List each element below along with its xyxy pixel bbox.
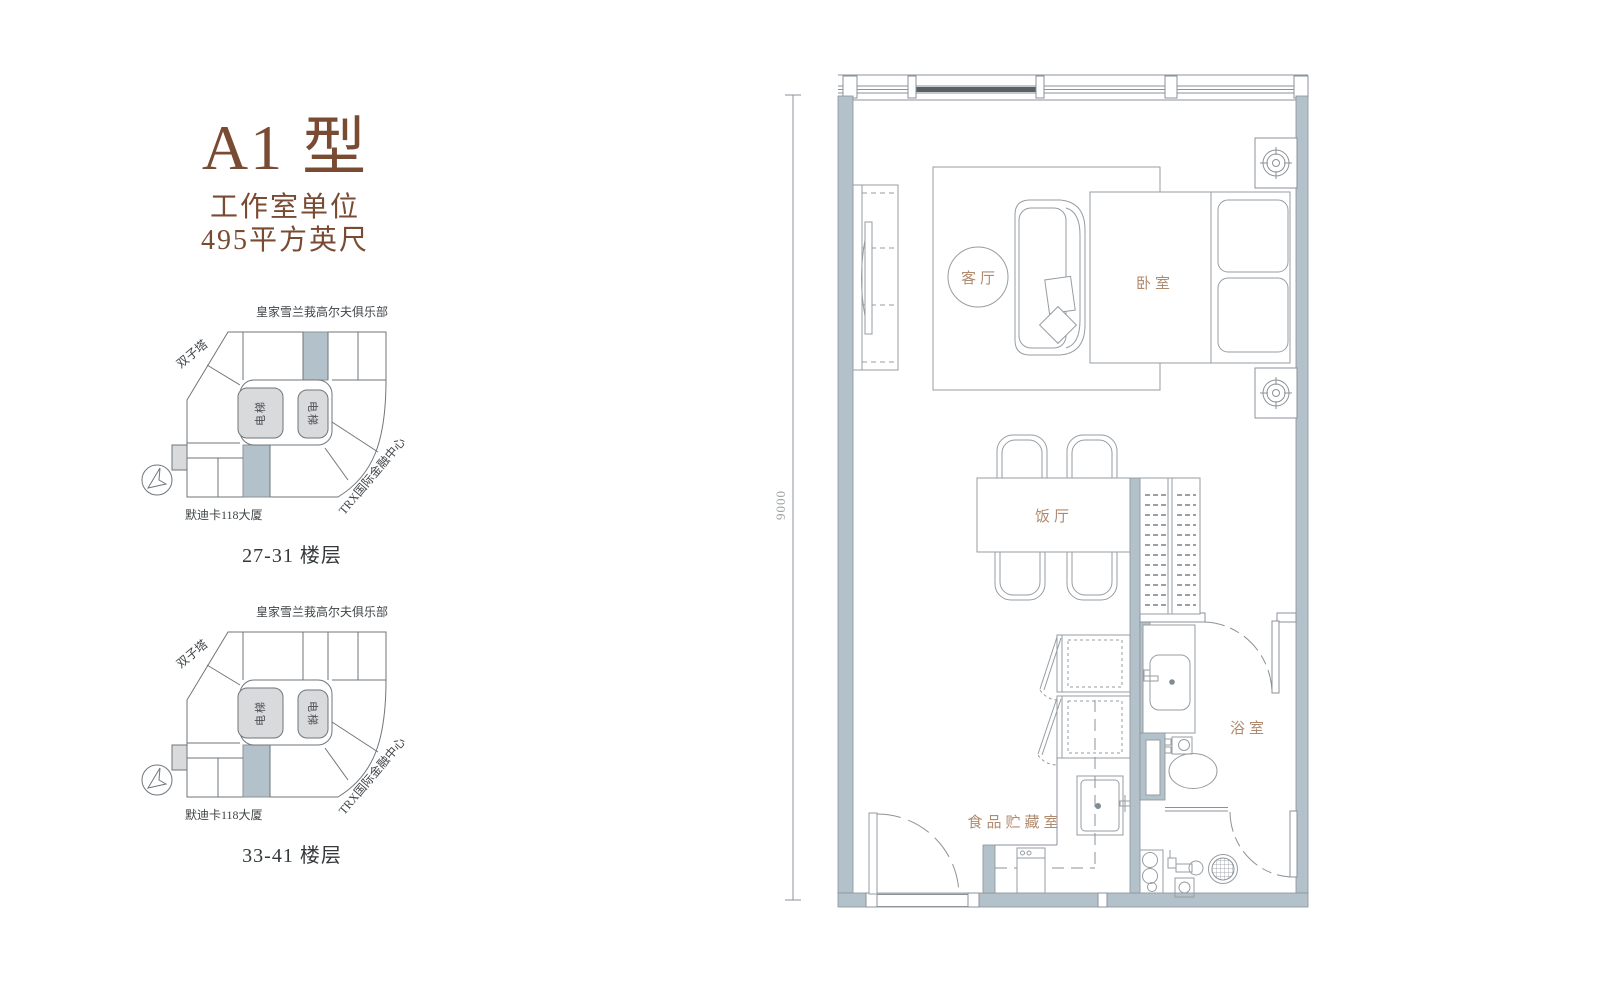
- floors-caption: 27-31 楼层: [242, 544, 342, 567]
- dimension-label: 9000: [773, 490, 788, 520]
- merdeka-label: 默迪卡118大厦: [185, 807, 263, 822]
- elevator-label-right: 电梯: [306, 401, 319, 427]
- golf-club-label: 皇家雪兰莪高尔夫俱乐部: [256, 304, 388, 319]
- pipe-riser: [1140, 850, 1163, 893]
- entry-door: [869, 813, 959, 895]
- pantry-label: 食品贮藏室: [967, 814, 1062, 831]
- wall-left: [838, 96, 853, 893]
- ac-unit-bottom: [1255, 368, 1297, 418]
- trx-label: TRX国际金融中心: [335, 434, 408, 517]
- highlight-unit-top: [303, 332, 328, 380]
- shower-door: [1230, 811, 1297, 877]
- washer: [1017, 848, 1045, 893]
- bathroom-door: [1205, 621, 1279, 693]
- unit-area-label: 495平方英尺: [60, 218, 510, 258]
- entry-frame-right: [968, 893, 979, 907]
- floors-caption: 33-41 楼层: [242, 844, 342, 867]
- twin-towers-label: 双子塔: [174, 637, 211, 671]
- merdeka-label: 默迪卡118大厦: [185, 507, 263, 522]
- core-tab: [172, 745, 187, 770]
- hanging-clothes: [1174, 486, 1196, 608]
- sink-drain: [1169, 679, 1175, 685]
- wardrobe: [1140, 478, 1200, 614]
- shower-drain: [1209, 855, 1238, 884]
- wall-kitchen-stub: [983, 845, 995, 893]
- trx-label: TRX国际金融中心: [335, 734, 408, 817]
- sofa: [1015, 200, 1085, 355]
- elevator-label-left: 电梯: [254, 700, 267, 726]
- core-tab: [172, 445, 187, 470]
- wall-right: [1296, 96, 1308, 893]
- vanity-counter: [1143, 625, 1195, 733]
- bathroom-label: 浴室: [1230, 720, 1268, 737]
- window-wall: [838, 75, 1308, 100]
- highlight-unit-bottom: [243, 745, 270, 797]
- tv: [865, 222, 872, 334]
- sliding-panel: [916, 87, 1036, 92]
- shaft-niche: [1146, 740, 1160, 795]
- dining-label: 饭厅: [1035, 508, 1073, 525]
- hanging-clothes: [1144, 486, 1166, 608]
- kitchen-sink: [1077, 776, 1130, 835]
- golf-club-label: 皇家雪兰莪高尔夫俱乐部: [256, 604, 388, 619]
- wall-core: [1130, 478, 1140, 893]
- entry-door-leaf: [869, 813, 877, 894]
- tv-console: [853, 185, 898, 370]
- main-floor-plan: 9000: [760, 55, 1320, 925]
- unit-type-title: A1 型: [60, 96, 510, 188]
- bedroom-label: 卧室: [1136, 275, 1174, 292]
- ac-unit-top: [1255, 138, 1297, 188]
- wall-bathroom-top-stub: [1277, 613, 1296, 622]
- upper-cabinet-2: [1038, 696, 1130, 765]
- upper-cabinet-1: [1040, 635, 1130, 700]
- elevator-label-left: 电梯: [254, 400, 267, 426]
- elevator-label-right: 电梯: [306, 701, 319, 727]
- key-plan-27-31: 电梯 电梯 皇家雪兰莪高尔夫俱乐部 双子塔 TRX国际金融中心 默迪卡118大厦…: [140, 290, 420, 570]
- living-room-label: 客厅: [961, 270, 999, 287]
- bedroom: 卧室: [1090, 138, 1297, 418]
- wall-seam: [1098, 893, 1107, 907]
- entry-frame-left: [866, 893, 877, 907]
- shower-valve: [1168, 850, 1203, 875]
- highlight-unit-bottom: [243, 445, 270, 497]
- dimension-line: 9000: [773, 95, 801, 900]
- shower-room: [1140, 811, 1297, 897]
- toilet: [1165, 737, 1217, 789]
- north-arrow-icon: [142, 465, 172, 495]
- unit-divider-lines: [187, 332, 386, 497]
- entry-opening: [877, 895, 968, 907]
- floorplan-page: A1 型 工作室单位 495平方英尺 电梯: [0, 0, 1600, 1001]
- dining-area: 饭厅: [977, 435, 1130, 600]
- twin-towers-label: 双子塔: [174, 337, 211, 371]
- unit-divider-lines: [187, 632, 386, 797]
- key-plan-33-41: 电梯 电梯 皇家雪兰莪高尔夫俱乐部 双子塔 TRX国际金融中心 默迪卡118大厦…: [140, 590, 420, 870]
- north-arrow-icon: [142, 765, 172, 795]
